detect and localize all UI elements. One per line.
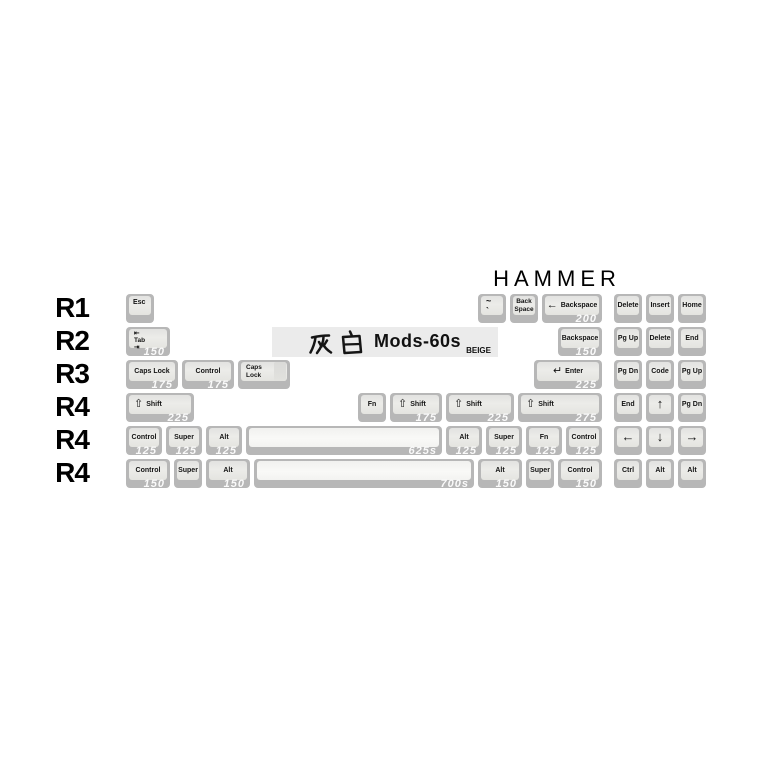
key-pg-up: Pg Up xyxy=(678,360,706,389)
key-alt: Alt xyxy=(646,459,674,488)
key-tilde: ~` xyxy=(478,294,506,323)
key-up-arrow: ↑ xyxy=(646,393,674,422)
key-size-label: 125 xyxy=(456,445,477,457)
keycap-top: Super xyxy=(177,461,199,480)
key-caps-lock-stepped: CapsLock xyxy=(238,360,290,389)
key-right-arrow: → xyxy=(678,426,706,455)
key-fn: Fn125 xyxy=(526,426,562,455)
key-size-label: 225 xyxy=(168,412,189,424)
keycap-top: BackSpace xyxy=(513,296,535,315)
key-ctrl: Ctrl xyxy=(614,459,642,488)
key-control: Control125 xyxy=(566,426,602,455)
key-legend: Alt xyxy=(459,434,468,442)
keycap-top: Pg Up xyxy=(617,329,639,348)
key-legend: Pg Dn xyxy=(682,401,702,409)
cjk-set-name: 灰白 xyxy=(272,327,273,328)
key-legend: Fn xyxy=(368,401,377,409)
shift-icon: ⇧ xyxy=(454,399,463,410)
key-legend: Super xyxy=(530,467,550,475)
keycap-top: Delete xyxy=(649,329,671,348)
key-shift: ⇧Shift225 xyxy=(446,393,514,422)
keycap-top: ↓ xyxy=(649,428,671,447)
keycap-top: ↑ xyxy=(649,395,671,414)
key-legend: Shift xyxy=(410,401,426,409)
key-size-label: 125 xyxy=(176,445,197,457)
row-label: R4 xyxy=(44,424,100,456)
key-left-arrow: ← xyxy=(614,426,642,455)
key-legend: Delete xyxy=(649,335,670,343)
keycap-top: Super xyxy=(529,461,551,480)
right-arrow-icon: → xyxy=(686,430,699,444)
keycap-top: ← xyxy=(617,428,639,447)
key-size-label: 150 xyxy=(576,478,597,490)
key-control: Control150 xyxy=(126,459,170,488)
key-size-label: 125 xyxy=(536,445,557,457)
key-size-label: 175 xyxy=(416,412,437,424)
key-caps-lock: Caps Lock175 xyxy=(126,360,178,389)
colorway-label: BEIGE xyxy=(466,346,491,355)
keycap-top: Delete xyxy=(617,296,639,315)
key-legend: Caps Lock xyxy=(134,368,169,376)
key-enter: ↵Enter225 xyxy=(534,360,602,389)
key-size-label: 275 xyxy=(576,412,597,424)
row-label: R1 xyxy=(44,292,100,324)
key-size-label: 125 xyxy=(496,445,517,457)
key-size-label: 125 xyxy=(136,445,157,457)
row-label: R3 xyxy=(44,358,100,390)
brand-title: HAMMER xyxy=(472,266,642,292)
keycap-top xyxy=(257,461,471,480)
key-end: End xyxy=(678,327,706,356)
keycap-top: Pg Dn xyxy=(681,395,703,414)
key-super: Super125 xyxy=(166,426,202,455)
key-delete: Delete xyxy=(646,327,674,356)
key-size-label: 200 xyxy=(576,313,597,325)
key-size-label: 125 xyxy=(216,445,237,457)
key-down-arrow: ↓ xyxy=(646,426,674,455)
key-size-label: 225 xyxy=(576,379,597,391)
shift-icon: ⇧ xyxy=(398,399,407,410)
key-legend: Pg Dn xyxy=(618,368,638,376)
key-legend-line: ⇥ xyxy=(134,344,139,351)
key-legend: Super xyxy=(494,434,514,442)
key-legend: Control xyxy=(572,434,597,442)
keycap-top: Home xyxy=(681,296,703,315)
row-label: R2 xyxy=(44,325,100,357)
key-legend: Control xyxy=(568,467,593,475)
keycap-top: End xyxy=(681,329,703,348)
key-legend: Code xyxy=(651,368,669,376)
key-alt: Alt125 xyxy=(206,426,242,455)
key-tab: ⇤Tab⇥150 xyxy=(126,327,170,356)
key-size-label: 150 xyxy=(144,346,165,358)
key-size-label: 700s xyxy=(441,478,469,490)
key-control: Control150 xyxy=(558,459,602,488)
key-super: Super xyxy=(174,459,202,488)
key-legend: Pg Up xyxy=(682,368,702,376)
key-control: Control175 xyxy=(182,360,234,389)
key-backspace: Backspace150 xyxy=(558,327,602,356)
key-alt: Alt150 xyxy=(206,459,250,488)
key-legend-line: ` xyxy=(486,307,489,317)
shift-icon: ⇧ xyxy=(134,399,143,410)
key-legend: Insert xyxy=(650,302,669,310)
keycap-top: Pg Up xyxy=(681,362,703,381)
key-pg-dn: Pg Dn xyxy=(678,393,706,422)
key-legend-line: Back xyxy=(516,298,532,305)
key-legend: End xyxy=(621,401,634,409)
key-size-label: 150 xyxy=(144,478,165,490)
key-delete: Delete xyxy=(614,294,642,323)
set-series-name: Mods-60s xyxy=(374,331,461,352)
keycap-top: Pg Dn xyxy=(617,362,639,381)
key-legend-line: Space xyxy=(514,306,533,313)
key-pg-up: Pg Up xyxy=(614,327,642,356)
keycap-top: Fn xyxy=(361,395,383,414)
key-size-label: 225 xyxy=(488,412,509,424)
key-legend: Super xyxy=(174,434,194,442)
key-super: Super125 xyxy=(486,426,522,455)
key-insert: Insert xyxy=(646,294,674,323)
key-legend: Shift xyxy=(146,401,162,409)
keycap-top: ~` xyxy=(481,296,503,315)
keycap-top: Alt xyxy=(681,461,703,480)
key-legend-line: Caps xyxy=(246,364,262,371)
row-label: R4 xyxy=(44,391,100,423)
key-legend: Backspace xyxy=(561,302,598,310)
key-back-space: BackSpace xyxy=(510,294,538,323)
key-legend: Ctrl xyxy=(622,467,634,475)
caps-lock-step xyxy=(274,362,286,381)
key-legend: Control xyxy=(136,467,161,475)
key-shift: ⇧Shift275 xyxy=(518,393,602,422)
key-shift: ⇧Shift175 xyxy=(390,393,442,422)
key-legend: Alt xyxy=(495,467,504,475)
up-arrow-icon: ↑ xyxy=(657,397,664,411)
keycap-top: Alt xyxy=(649,461,671,480)
key-fn: Fn xyxy=(358,393,386,422)
key-pg-dn: Pg Dn xyxy=(614,360,642,389)
key-legend-line: Lock xyxy=(246,372,261,379)
keycap-top: → xyxy=(681,428,703,447)
key-size-label: 150 xyxy=(576,346,597,358)
key-legend: Alt xyxy=(223,467,232,475)
key-shift: ⇧Shift225 xyxy=(126,393,194,422)
row-label: R4 xyxy=(44,457,100,489)
key-end: End xyxy=(614,393,642,422)
backspace-arrow-icon: ← xyxy=(547,300,558,311)
enter-return-icon: ↵ xyxy=(553,366,562,377)
key-legend: End xyxy=(685,335,698,343)
key-home: Home xyxy=(678,294,706,323)
key-legend: Super xyxy=(178,467,198,475)
left-arrow-icon: ← xyxy=(622,430,635,444)
key-legend: Fn xyxy=(540,434,549,442)
keycap-top: Esc xyxy=(129,296,151,315)
key-size-label: 175 xyxy=(208,379,229,391)
down-arrow-icon: ↓ xyxy=(657,430,664,444)
cjk-calligraphy-icon xyxy=(308,330,366,355)
key-legend: Delete xyxy=(617,302,638,310)
keycap-layout-diagram: HAMMER 灰白 Mods-60s BEIGE R1Esc~`BackSpac… xyxy=(0,0,768,768)
key-legend: Shift xyxy=(466,401,482,409)
key-legend: Control xyxy=(132,434,157,442)
key-legend: Enter xyxy=(565,368,583,376)
key-alt: Alt125 xyxy=(446,426,482,455)
key-size-label: 150 xyxy=(224,478,245,490)
key-control: Control125 xyxy=(126,426,162,455)
key-legend: Backspace xyxy=(562,335,599,343)
keycap-top: Insert xyxy=(649,296,671,315)
key-size-label: 175 xyxy=(152,379,173,391)
key-esc: Esc xyxy=(126,294,154,323)
key-size-label: 150 xyxy=(496,478,517,490)
key-size-label: 125 xyxy=(576,445,597,457)
key-alt: Alt xyxy=(678,459,706,488)
key-legend: Pg Up xyxy=(618,335,638,343)
key-legend: Alt xyxy=(219,434,228,442)
key-size-label: 625s xyxy=(409,445,437,457)
key-legend: Esc xyxy=(133,299,145,307)
shift-icon: ⇧ xyxy=(526,399,535,410)
key-legend: Alt xyxy=(687,467,696,475)
key-backspace: ←Backspace200 xyxy=(542,294,602,323)
keycap-top: End xyxy=(617,395,639,414)
key-spacebar-625: 625s xyxy=(246,426,442,455)
key-legend: Home xyxy=(682,302,701,310)
key-legend-line: Tab xyxy=(134,337,145,344)
keycap-top: Ctrl xyxy=(617,461,639,480)
key-legend: Control xyxy=(196,368,221,376)
key-legend: Alt xyxy=(655,467,664,475)
key-super: Super xyxy=(526,459,554,488)
key-legend-line: ⇤ xyxy=(134,330,139,337)
key-code: Code xyxy=(646,360,674,389)
keycap-top: Code xyxy=(649,362,671,381)
key-legend: Shift xyxy=(538,401,554,409)
key-spacebar-700: 700s xyxy=(254,459,474,488)
set-name-banner: 灰白 Mods-60s BEIGE xyxy=(272,327,498,357)
key-alt: Alt150 xyxy=(478,459,522,488)
